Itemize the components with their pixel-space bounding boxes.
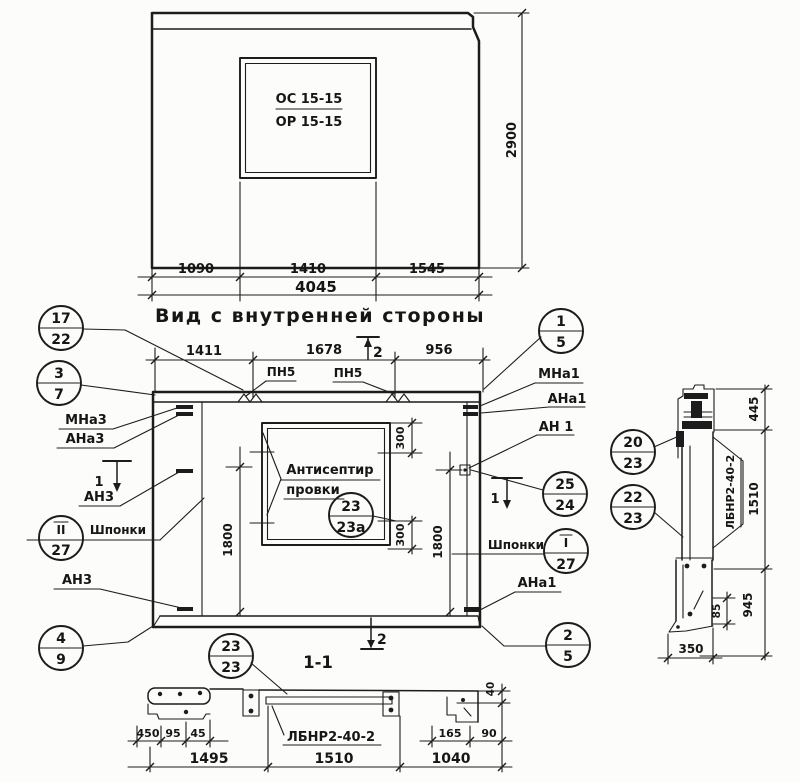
callout-bottom: 9 [56,652,66,668]
callout-bottom: 23 [221,660,240,676]
callout-bottom: 27 [556,557,575,573]
note-line1: Антисептир [286,463,373,478]
side-section-bottom [669,558,713,632]
callout-bottom: 23а [337,520,366,536]
section-1-1: 1-1 2 [128,618,512,772]
panel-outline [152,13,479,268]
inner-view-top-dims: 1411 1678 956 [146,343,490,398]
dim-165: 165 [439,727,462,740]
callout-top: 22 [623,490,642,506]
dim-1090: 1090 [178,262,214,277]
dim-1040: 1040 [432,751,471,767]
callout-25-24: 25 24 [471,470,587,516]
dim-300-bottom: 300 [394,523,407,546]
callout-top: 23 [221,639,240,655]
side-section-body: ЛБНР2-40-2 [682,432,743,560]
dim-1410: 1410 [290,262,326,277]
section-1-1-title: 1-1 [303,653,333,672]
dim-350-label: 350 [678,642,703,656]
dim-40: 40 [478,682,510,710]
dim-2900: 2900 [505,122,520,158]
callout-i-27: I 27 [544,529,588,573]
label-ana3: АНа3 [66,432,105,447]
top-elevation-view: ОС 15-15 ОР 15-15 1090 1410 1545 4045 [138,9,529,301]
callout-3-7: 3 7 [37,361,155,405]
dim-1510: 1510 [315,751,354,767]
anchor-marks [176,405,479,612]
callout-22-23: 22 23 [611,485,683,537]
dim-956: 956 [425,343,452,358]
label-mna3: МНа3 [65,413,107,428]
inner-view-title: Вид с внутренней стороны [155,305,485,327]
dim-95: 95 [165,727,180,740]
dim-85: 85 [711,592,735,630]
dim-85-label: 85 [711,604,723,619]
callout-top: 1 [556,314,566,330]
label-ana1-upper: АНа1 [548,392,587,407]
marker-2-bottom-label: 2 [377,632,387,648]
callout-bottom: 5 [563,649,573,665]
dim-45: 45 [190,727,205,740]
dim-1510-side: 1510 [747,482,761,515]
callout-23-23: 23 23 [209,634,287,694]
side-beam-label: ЛБНР2-40-2 [724,455,737,530]
callout-bottom: 7 [54,387,64,403]
label-shponki-right: Шпонки [488,538,544,552]
callout-top: 20 [623,435,643,451]
callout-20-23: 20 23 [611,430,679,474]
callout-top: 3 [54,366,64,382]
dim-4045: 4045 [295,278,337,296]
left-labels: МНа3 АНа3 АН3 Шпонки АН3 [27,408,204,609]
callout-top: 17 [51,311,70,327]
antiseptic-note: Антисептир провки [263,433,380,515]
label-an3-lower: АН3 [62,573,92,588]
dim-40-label: 40 [485,682,497,697]
dim-945: 945 [741,592,755,617]
callout-balloons: 17 22 3 7 II 27 4 9 1 5 [37,306,683,694]
dim-350: 350 [658,628,722,664]
callout-top: I [564,536,568,550]
callout-top: 4 [56,631,66,647]
label-an3-upper: АН3 [84,490,114,505]
label-an1: АН 1 [539,420,574,435]
callout-bottom: 23 [623,456,642,472]
callout-top: 25 [555,477,574,493]
dim-450: 450 [137,727,160,740]
callout-4-9: 4 9 [39,626,153,670]
label-pn5-right: ПН5 [334,366,362,380]
marker-2-top-label: 2 [373,345,383,361]
plank-notch-left [238,394,262,402]
callout-top: II [57,523,66,537]
beam-label: ЛБНР2-40-2 [287,730,375,745]
callout-ii-27: II 27 [39,516,83,560]
callout-23-23a: 23 23а [329,493,396,537]
plank-notch-right [386,394,410,402]
dim-445: 445 [747,396,761,421]
dim-1545: 1545 [409,262,445,277]
label-pn5-left: ПН5 [267,365,295,379]
drawing-sheet: ОС 15-15 ОР 15-15 1090 1410 1545 4045 [0,0,800,782]
dim-1800-left: 1800 [221,523,235,556]
callout-bottom: 23 [623,511,642,527]
section-marker-2-bottom: 2 [361,618,387,649]
beam-callout: ЛБНР2-40-2 [272,706,381,745]
callout-bottom: 22 [51,332,70,348]
dim-1800-right: 1800 [431,525,445,558]
section-marker-2-top: 2 [357,337,383,361]
callout-bottom: 27 [51,543,70,559]
dim-1411: 1411 [186,344,222,359]
marker-1-left-label: 1 [94,475,103,490]
note-line2: провки [286,483,339,498]
inner-elevation-view: 1411 1678 956 2 [27,337,586,627]
label-shponki-left: Шпонки [90,523,146,537]
callout-2-5: 2 5 [482,623,590,667]
top-view-dimensions: 1090 1410 1545 4045 2900 [138,9,529,301]
section-1-1-body [148,688,478,722]
opening-mark-top: ОС 15-15 [276,92,343,107]
dim-90: 90 [481,727,497,740]
marker-1-right-label: 1 [490,492,499,507]
opening-mark-bottom: ОР 15-15 [276,115,343,130]
side-section-view: ЛБНР2-40-2 85 [658,385,772,664]
callout-bottom: 24 [555,498,575,514]
dim-1678: 1678 [306,343,342,358]
dim-1495: 1495 [190,751,229,767]
label-mna1: МНа1 [538,367,580,382]
section-marker-1-left: 1 [94,461,131,492]
callout-top: 2 [563,628,573,644]
callout-top: 23 [341,499,360,515]
label-ana1-lower: АНа1 [518,576,557,591]
dim-300-top: 300 [394,426,407,449]
callout-bottom: 5 [556,335,566,351]
